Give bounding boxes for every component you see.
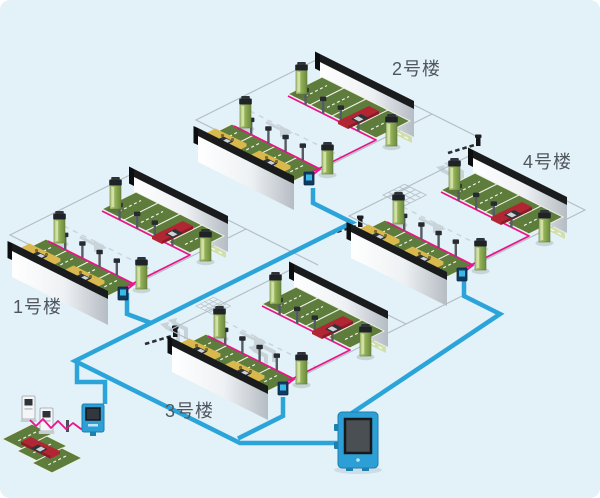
charging-station (21, 396, 37, 422)
curbside-charging-cluster (2, 396, 104, 473)
network-branch-building-1 (127, 293, 151, 323)
building-2-label: 2号楼 (392, 55, 441, 81)
payment-kiosk (82, 404, 104, 436)
building-3-label: 3号楼 (165, 397, 214, 423)
gate-barrier (448, 135, 482, 154)
charging-network-diagram: 1号楼 2号楼 3号楼 4号楼 (0, 0, 600, 498)
controller-button (356, 458, 360, 462)
controller-screen (345, 419, 371, 453)
building-1-label: 1号楼 (13, 293, 62, 319)
building-4-label: 4号楼 (523, 148, 572, 174)
diagram-canvas (0, 0, 600, 498)
central-controller (334, 412, 382, 474)
